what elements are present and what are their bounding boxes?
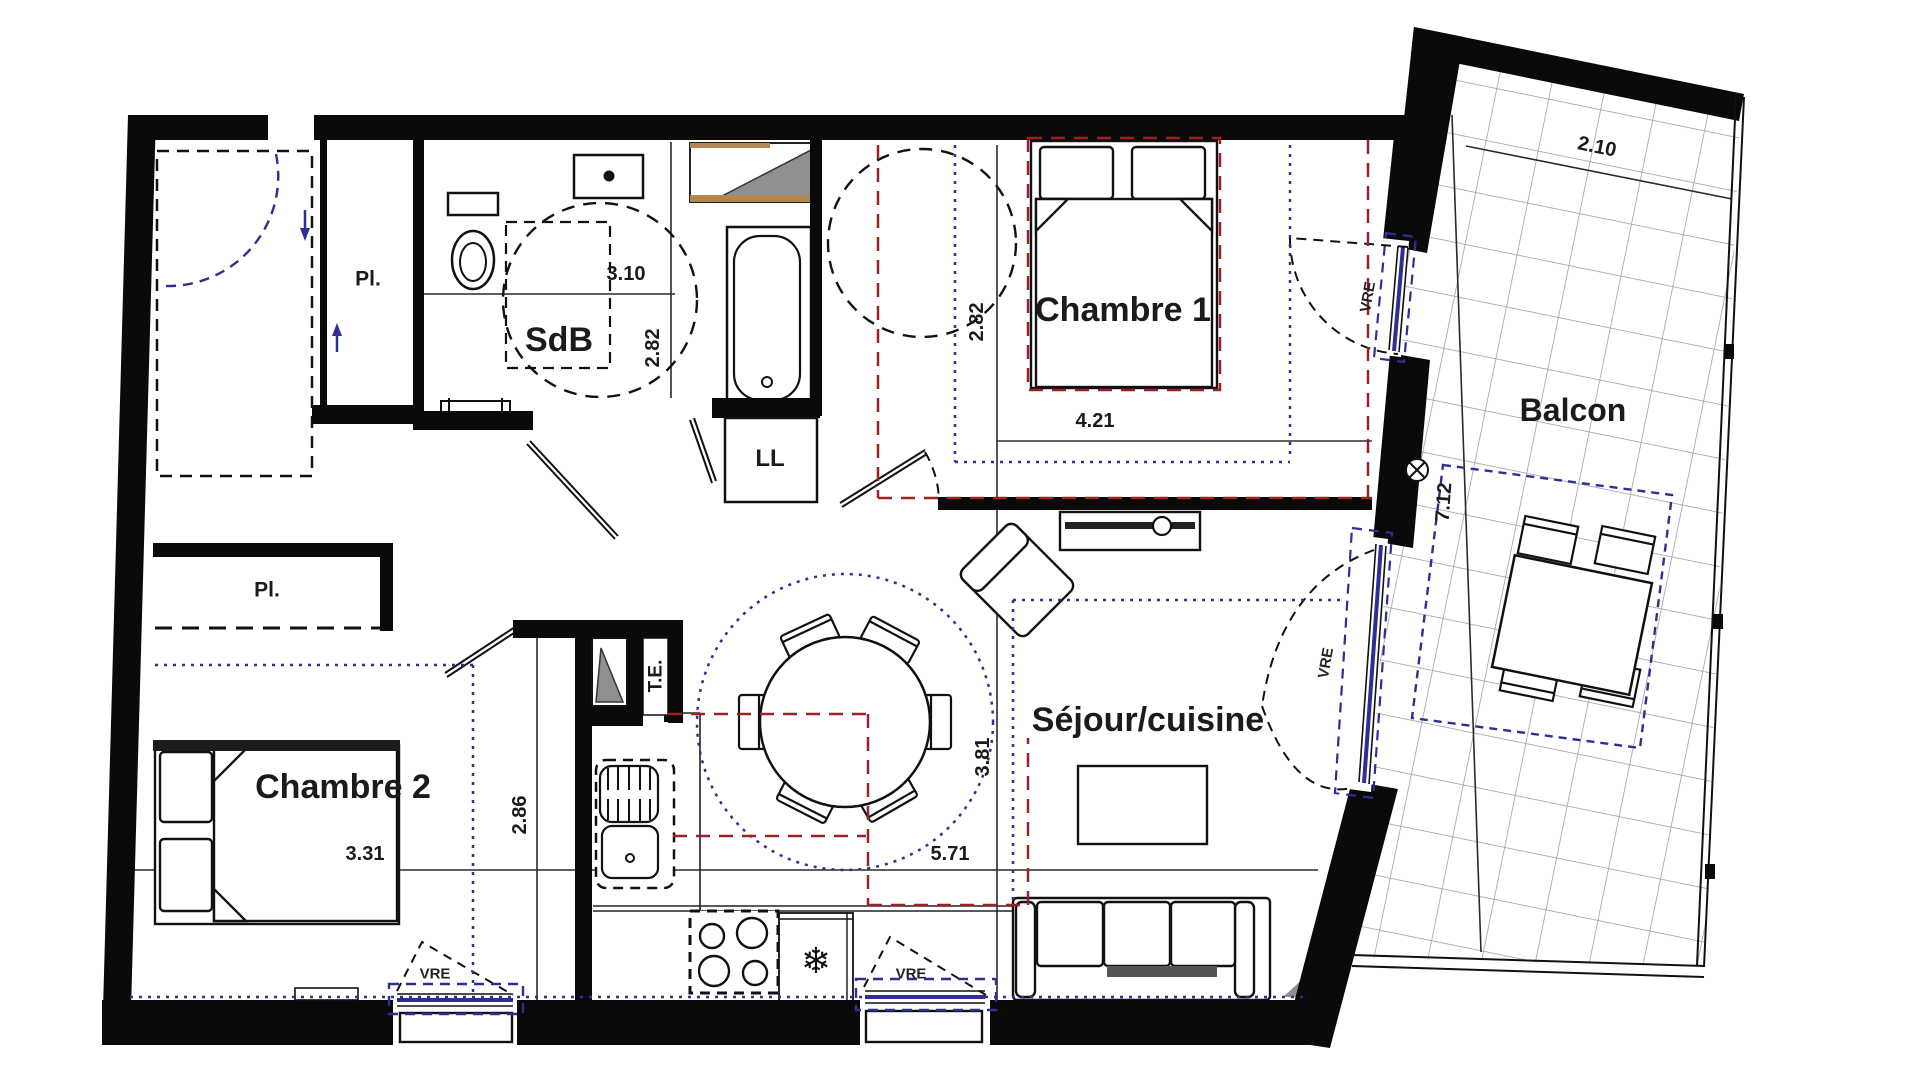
room-label-chambre2: Chambre 2: [255, 770, 431, 804]
sofa: [1013, 898, 1270, 1000]
window-label-sejour-sud: VRE: [896, 967, 927, 982]
coffee-table: [1078, 766, 1207, 844]
entry-arrow-up-icon: [332, 323, 342, 336]
room-label-balcon: Balcon: [1520, 394, 1627, 426]
armchair: [958, 521, 1077, 640]
washer-label: LL: [755, 447, 784, 471]
dim-chambre1-width: 4.21: [1076, 411, 1115, 431]
entry-arrow-down-icon: [300, 228, 310, 241]
round-table: [760, 637, 930, 807]
dim-sejour-width: 5.71: [931, 844, 970, 864]
window-chambre2: [389, 942, 523, 1045]
bathroom-sink: [574, 155, 643, 198]
dim-chambre1-height: 2.82: [967, 303, 987, 342]
room-label-sejour: Séjour/cuisine: [1032, 703, 1264, 737]
electrical-panel-label: T.E.: [647, 660, 666, 693]
dim-chambre2-height: 2.86: [510, 796, 530, 835]
bed-chambre1: [1031, 141, 1217, 388]
closet-label-entry: Pl.: [355, 269, 381, 290]
toilet: [448, 193, 498, 289]
kitchen-sink-unit: [596, 760, 674, 888]
drain-symbol: [1406, 459, 1428, 481]
window-sejour-sud: [856, 937, 996, 1045]
window-chambre1: [1290, 233, 1416, 362]
tv-unit: [1060, 512, 1200, 550]
room-label-sdb: SdB: [525, 323, 593, 357]
kitchen-duct: [592, 638, 627, 706]
dim-sdb-height: 2.82: [643, 329, 663, 368]
entry-closet-dashed: [157, 151, 312, 476]
dim-balcon-length: 7.12: [1433, 482, 1456, 522]
bathtub: [727, 227, 811, 416]
window-label-chambre2: VRE: [420, 967, 451, 982]
floor-plan: ❄: [0, 0, 1920, 1080]
entry-door-opening: [268, 113, 314, 142]
fridge: ❄: [779, 913, 853, 1001]
stove: [690, 911, 778, 993]
floor-plan-drawing: ❄: [0, 0, 1920, 1080]
closet-label-chambre2: Pl.: [254, 580, 280, 601]
room-label-chambre1: Chambre 1: [1035, 293, 1211, 327]
fridge-snowflake-icon: ❄: [801, 941, 831, 982]
dim-sejour-height: 3.81: [973, 738, 993, 777]
dim-chambre2-width: 3.31: [346, 844, 385, 864]
duct-box: [690, 143, 817, 202]
dining-set: [739, 614, 951, 824]
dim-sdb-width: 3.10: [607, 264, 646, 284]
